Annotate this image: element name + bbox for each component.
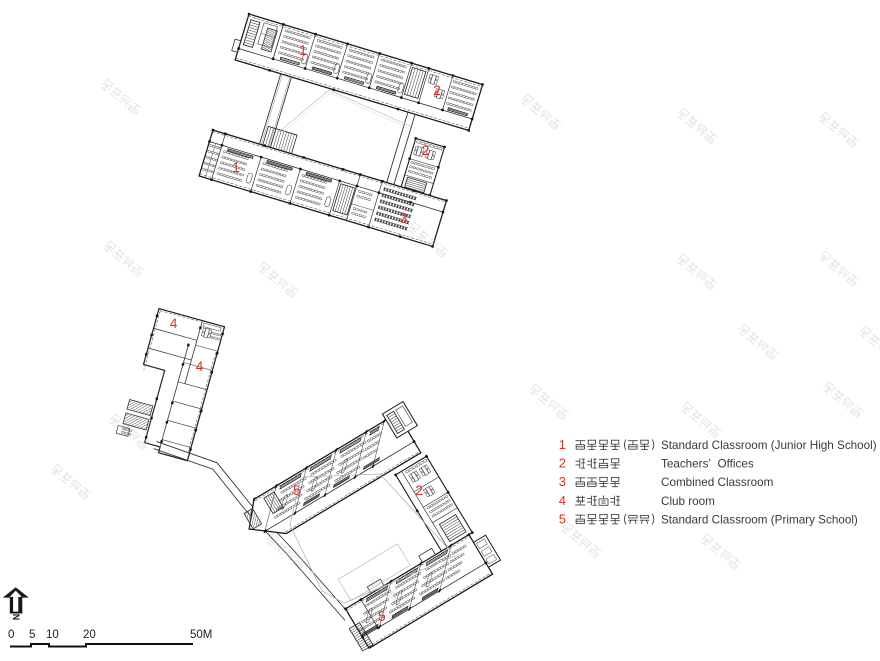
svg-text:5: 5 [378, 609, 386, 624]
svg-text:2: 2 [422, 143, 430, 158]
svg-text:3: 3 [400, 211, 408, 226]
svg-text:50M: 50M [190, 629, 212, 641]
svg-text:Standard Classroom (Primary Sc: Standard Classroom (Primary School) [661, 513, 858, 526]
svg-text:5: 5 [29, 629, 35, 641]
svg-text:Teachers’ Offices: Teachers’ Offices [661, 458, 754, 471]
svg-text:4: 4 [196, 359, 204, 374]
svg-text:2: 2 [433, 83, 441, 98]
svg-text:0: 0 [8, 629, 14, 641]
svg-text:4: 4 [559, 493, 566, 508]
svg-text:10: 10 [46, 629, 59, 641]
svg-text:N: N [11, 614, 21, 621]
svg-text:Standard Classroom (Junior Hig: Standard Classroom (Junior High School) [661, 439, 877, 452]
svg-text:2: 2 [415, 483, 423, 498]
svg-text:4: 4 [170, 316, 178, 331]
svg-text:1: 1 [232, 160, 240, 175]
svg-text:Combined Classroom: Combined Classroom [661, 476, 773, 489]
svg-text:2: 2 [559, 456, 566, 471]
svg-text:20: 20 [83, 629, 96, 641]
svg-text:5: 5 [293, 483, 301, 498]
svg-text:Club room: Club room [661, 495, 715, 508]
svg-text:1: 1 [299, 43, 307, 58]
svg-text:1: 1 [559, 437, 566, 452]
svg-text:3: 3 [559, 474, 566, 489]
